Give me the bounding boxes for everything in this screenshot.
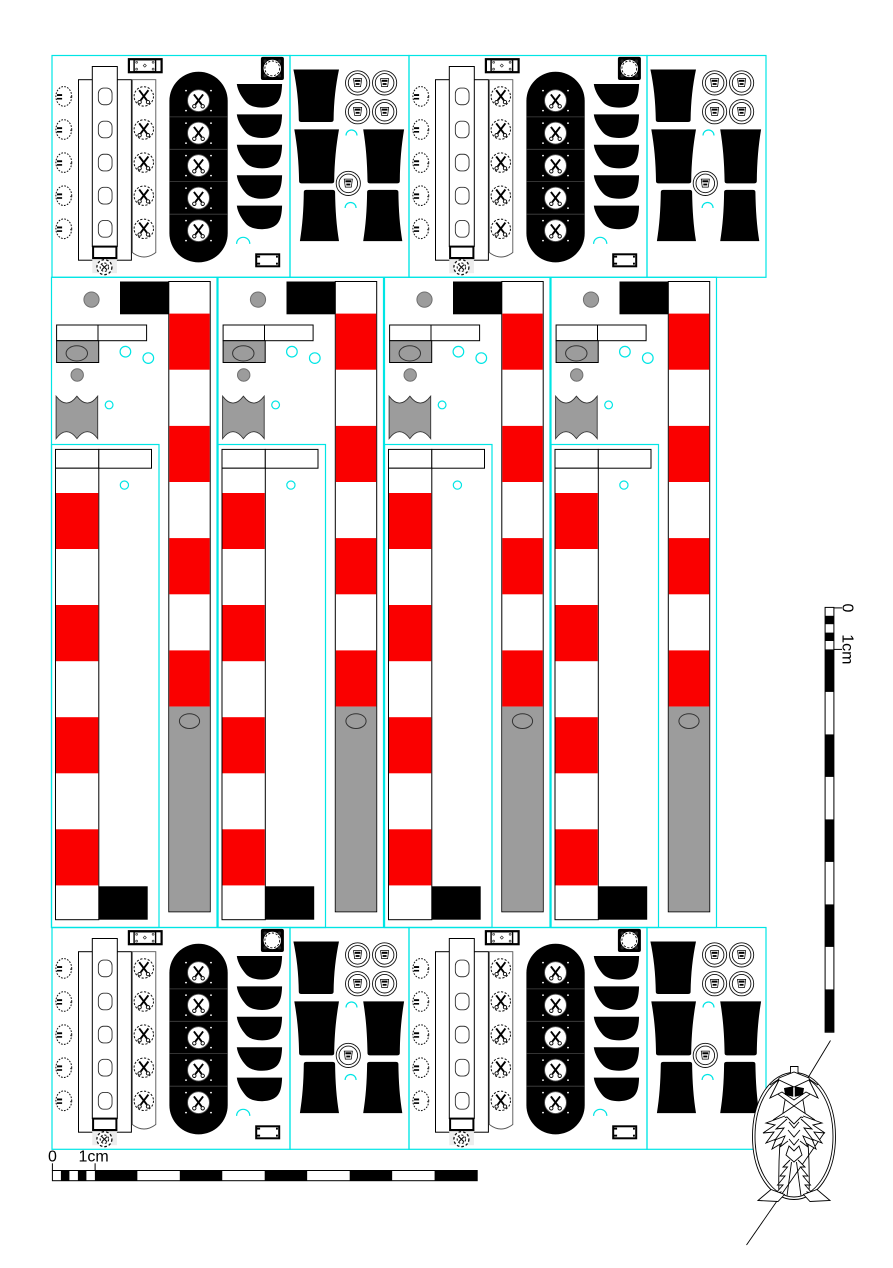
svg-text:1cm: 1cm: [78, 1149, 108, 1166]
svg-text:1cm: 1cm: [838, 634, 855, 664]
svg-text:0: 0: [48, 1149, 57, 1166]
svg-text:0: 0: [838, 603, 855, 612]
